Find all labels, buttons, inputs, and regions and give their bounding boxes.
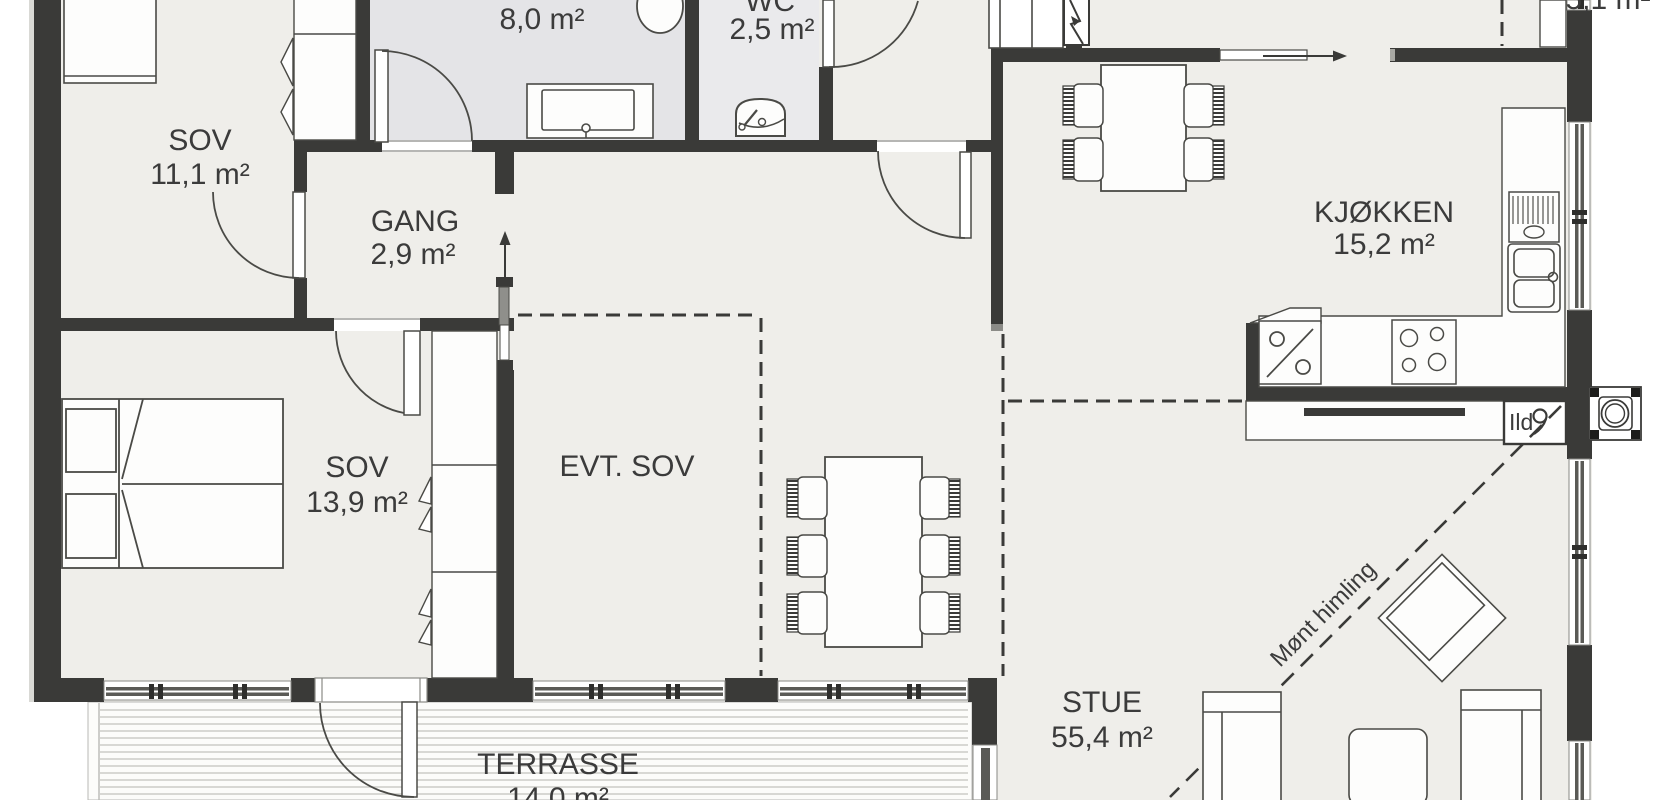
svg-text:15,2 m²: 15,2 m² [1333,228,1435,261]
svg-text:55,4 m²: 55,4 m² [1051,721,1153,754]
svg-text:14,0 m²: 14,0 m² [507,782,609,800]
svg-text:SOV: SOV [168,124,231,157]
svg-text:Ild: Ild [1509,409,1533,435]
svg-text:STUE: STUE [1062,686,1142,719]
svg-text:2,9 m²: 2,9 m² [370,238,455,271]
svg-text:13,9 m²: 13,9 m² [306,486,408,519]
svg-text:8,0 m²: 8,0 m² [499,3,584,36]
svg-text:2,5 m²: 2,5 m² [729,13,814,46]
svg-text:11,1 m²: 11,1 m² [150,158,249,191]
svg-text:TERRASSE: TERRASSE [477,748,639,781]
svg-text:GANG: GANG [371,205,459,238]
svg-text:KJØKKEN: KJØKKEN [1314,196,1454,229]
svg-text:EVT. SOV: EVT. SOV [559,450,694,483]
svg-text:5,1 m²: 5,1 m² [1565,0,1650,16]
svg-text:SOV: SOV [325,451,388,484]
